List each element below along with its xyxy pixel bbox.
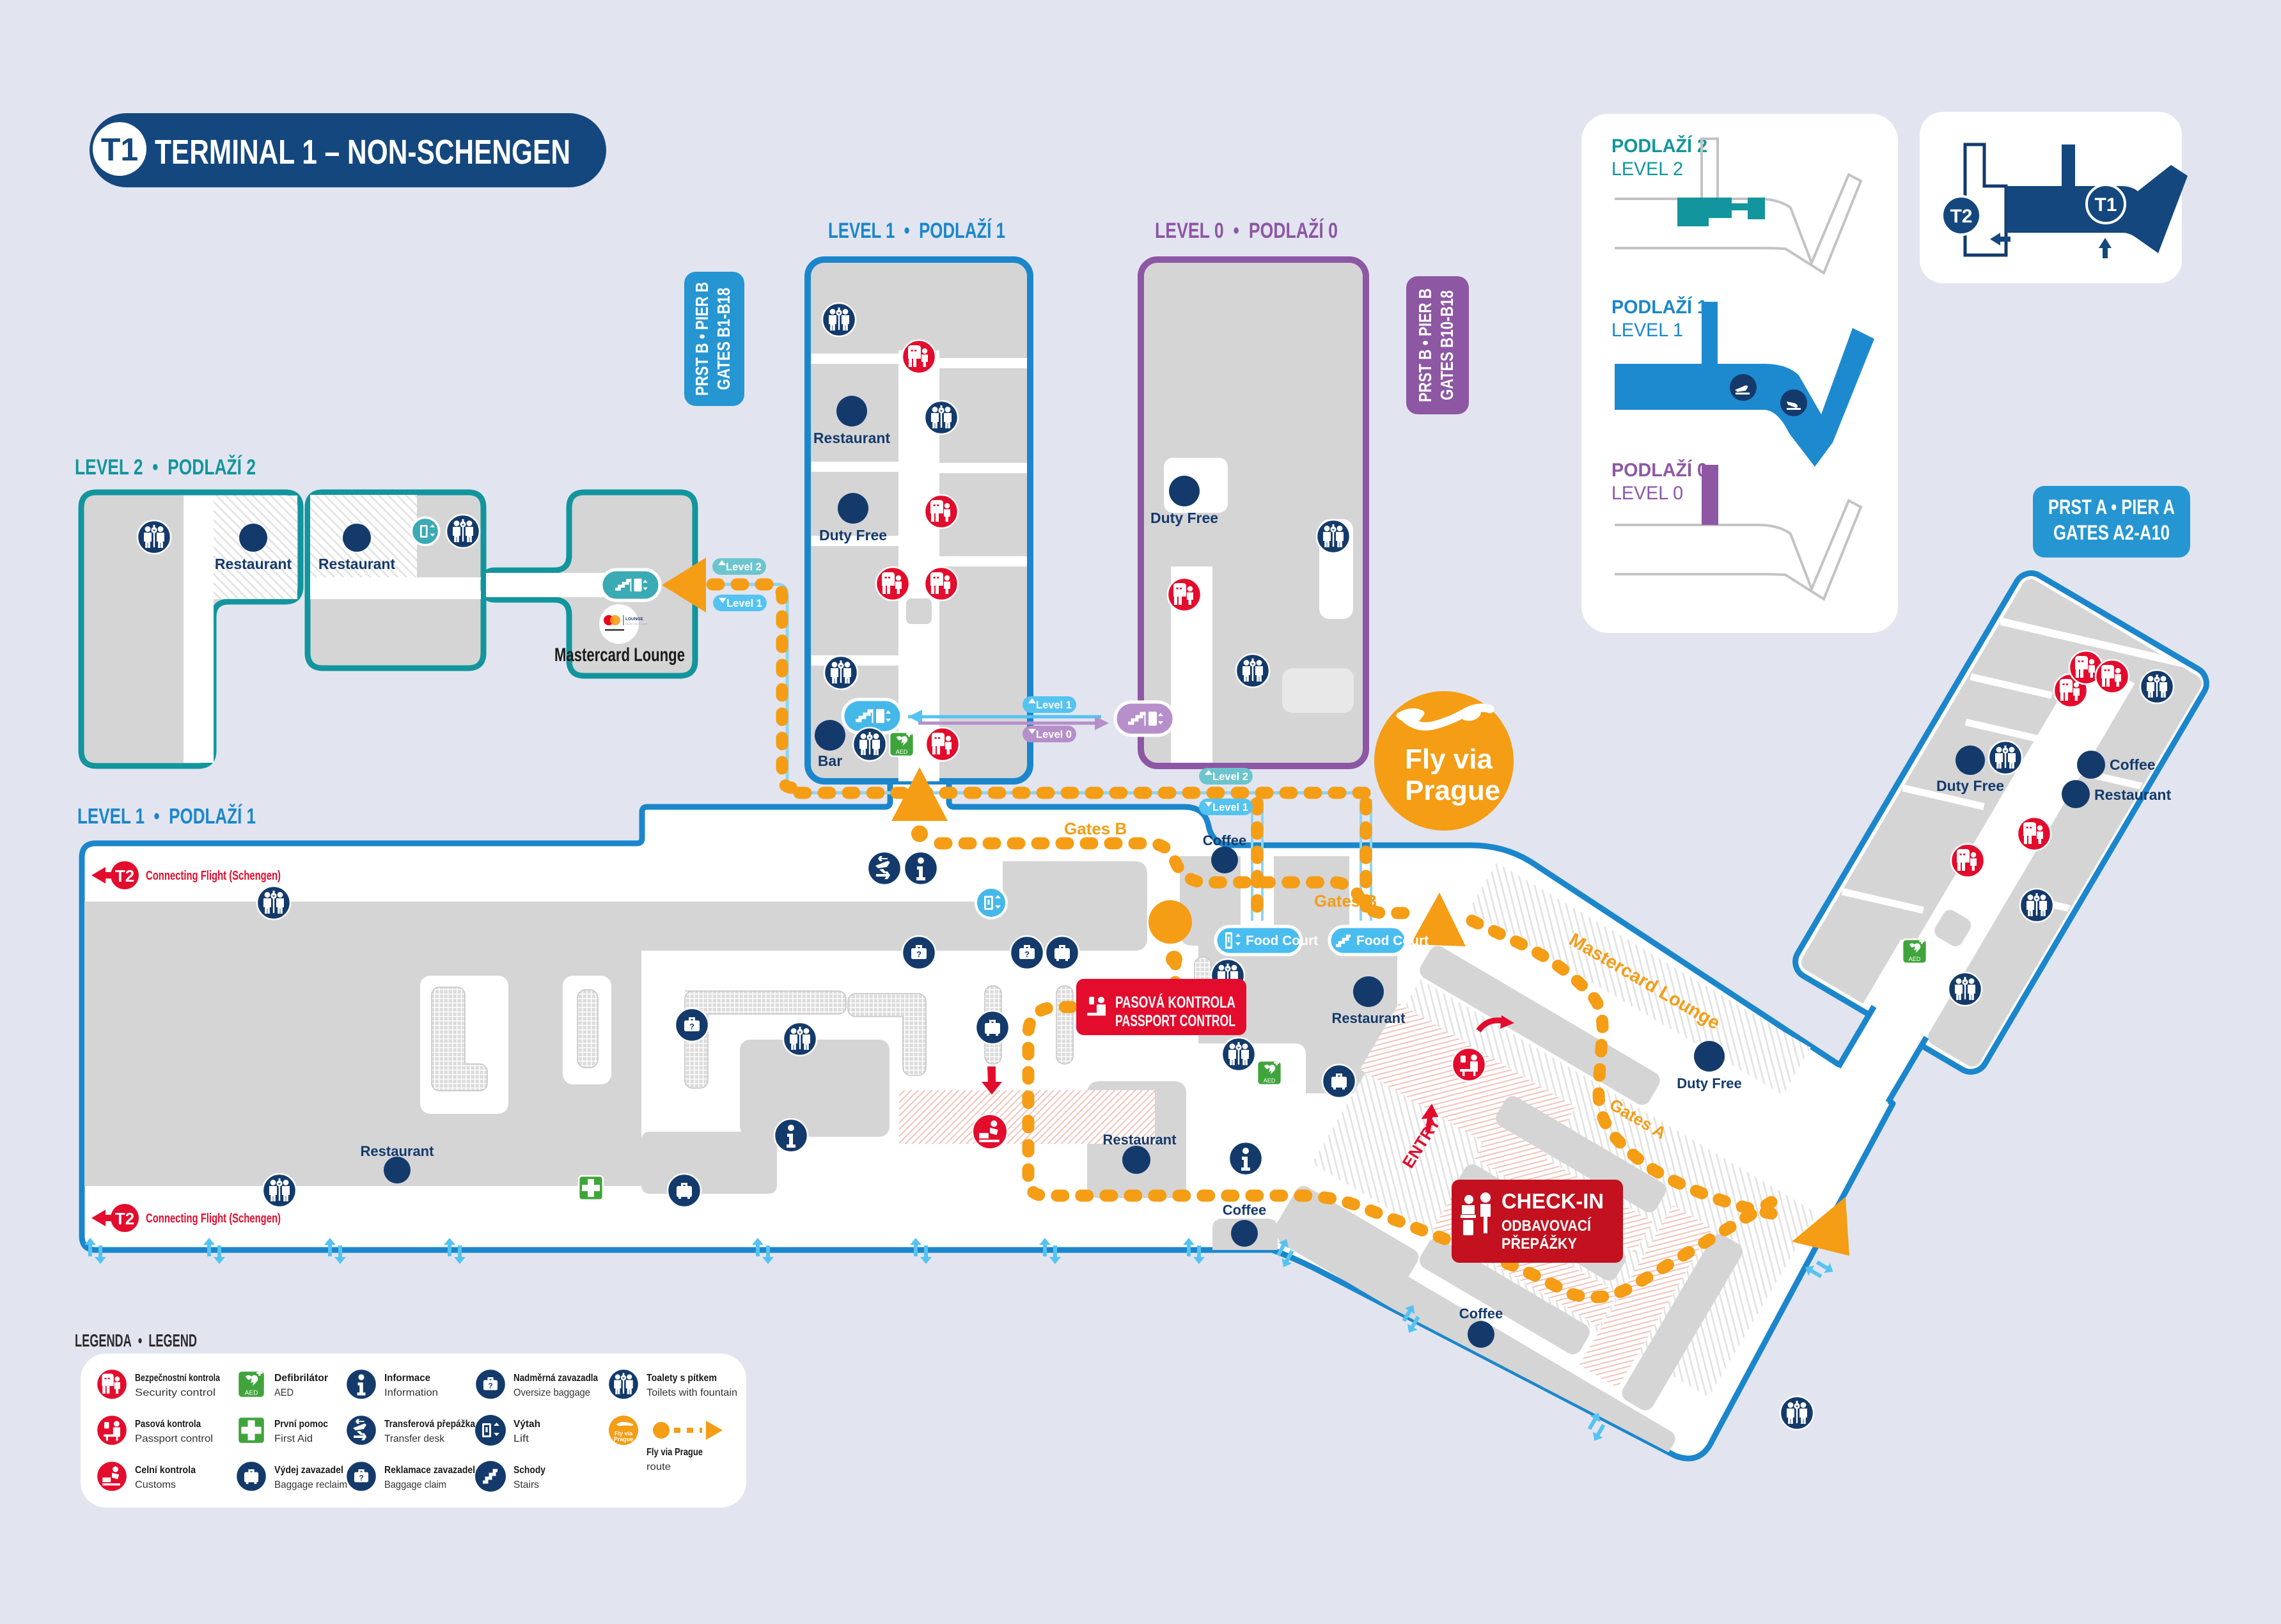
svg-text:První pomoc: První pomoc [274,1419,328,1430]
svg-text:Vaclav Havel Airport: Vaclav Havel Airport [625,622,649,625]
svg-text:PASSPORT CONTROL: PASSPORT CONTROL [1115,1012,1235,1030]
svg-text:TERMINAL 1 – NON-SCHENGEN: TERMINAL 1 – NON-SCHENGEN [155,133,570,171]
svg-text:Customs: Customs [135,1480,176,1490]
svg-text:LEVEL 2 • PODLAŽÍ 2: LEVEL 2 • PODLAŽÍ 2 [75,455,256,480]
svg-text:CHECK-IN: CHECK-IN [1501,1189,1604,1213]
svg-text:GATES B1-B18: GATES B1-B18 [714,288,733,390]
svg-text:Lift: Lift [513,1433,529,1444]
svg-text:Oversize baggage: Oversize baggage [513,1387,590,1398]
svg-text:Connecting Flight (Schengen): Connecting Flight (Schengen) [146,869,281,883]
svg-text:Bar: Bar [818,753,842,769]
svg-text:Gates B: Gates B [1064,819,1127,838]
svg-text:Transfer desk: Transfer desk [384,1433,445,1444]
svg-text:PODLAŽÍ 0: PODLAŽÍ 0 [1611,459,1707,481]
svg-text:LEVEL 0 • PODLAŽÍ 0: LEVEL 0 • PODLAŽÍ 0 [1155,219,1338,243]
svg-text:T2: T2 [115,866,134,886]
svg-text:Schody: Schody [513,1465,545,1476]
svg-text:Restaurant: Restaurant [318,556,395,572]
svg-text:Mastercard Lounge: Mastercard Lounge [554,644,685,666]
svg-text:Level 2: Level 2 [726,561,762,573]
svg-text:GATES A2-A10: GATES A2-A10 [2053,521,2170,544]
svg-text:Coffee: Coffee [2110,756,2156,773]
svg-text:Restaurant: Restaurant [2094,786,2171,803]
svg-text:Food Court: Food Court [1246,933,1318,948]
svg-text:Výdej zavazadel: Výdej zavazadel [274,1465,343,1476]
svg-text:LEVEL 1 • PODLAŽÍ 1: LEVEL 1 • PODLAŽÍ 1 [828,219,1005,243]
svg-text:Baggage reclaim: Baggage reclaim [274,1480,347,1490]
svg-text:Výtah: Výtah [513,1419,540,1430]
svg-text:Restaurant: Restaurant [1332,1010,1406,1026]
svg-text:LEVEL 1 • PODLAŽÍ 1: LEVEL 1 • PODLAŽÍ 1 [77,804,256,829]
svg-text:PRST B • PIER B: PRST B • PIER B [1415,288,1435,402]
svg-text:Celní kontrola: Celní kontrola [135,1465,196,1476]
svg-text:First Aid: First Aid [274,1433,313,1444]
svg-text:Information: Information [384,1387,438,1398]
svg-text:Informace: Informace [384,1373,430,1384]
svg-text:Baggage claim: Baggage claim [384,1480,446,1490]
svg-text:Prague: Prague [614,1436,634,1442]
svg-text:Coffee: Coffee [1203,832,1246,848]
svg-text:LEVEL 1: LEVEL 1 [1611,320,1683,341]
svg-text:GATES B10-B18: GATES B10-B18 [1437,290,1457,400]
svg-text:Level 1: Level 1 [726,598,762,609]
svg-text:Restaurant: Restaurant [361,1143,435,1159]
svg-text:T1: T1 [101,132,138,168]
svg-text:LEVEL 0: LEVEL 0 [1611,483,1683,504]
svg-text:Defibrilátor: Defibrilátor [274,1373,328,1384]
svg-text:Prague: Prague [1405,775,1500,806]
svg-text:AED: AED [274,1387,294,1398]
svg-text:ODBAVOVACÍ: ODBAVOVACÍ [1501,1217,1592,1235]
svg-text:T2: T2 [115,1209,134,1228]
svg-text:Passport control: Passport control [135,1433,213,1444]
svg-text:Duty Free: Duty Free [819,527,887,543]
svg-text:Toilets with fountain: Toilets with fountain [647,1387,737,1398]
svg-text:Gates B: Gates B [1314,891,1377,910]
svg-text:Coffee: Coffee [1223,1202,1266,1218]
svg-text:Food Court: Food Court [1356,933,1429,948]
svg-text:Level 2: Level 2 [1212,771,1248,783]
svg-text:Level 1: Level 1 [1212,802,1248,813]
svg-text:Fly via Prague: Fly via Prague [647,1447,703,1458]
svg-text:route: route [647,1462,671,1472]
svg-text:Stairs: Stairs [513,1480,539,1490]
svg-text:Restaurant: Restaurant [215,556,292,572]
svg-text:PRST A • PIER A: PRST A • PIER A [2048,496,2175,519]
svg-text:Bezpečnostní kontrola: Bezpečnostní kontrola [135,1373,220,1384]
svg-text:Duty Free: Duty Free [1936,777,2004,794]
svg-text:LOUNGE: LOUNGE [625,617,643,621]
svg-text:Duty Free: Duty Free [1150,510,1218,526]
svg-text:PODLAŽÍ 2: PODLAŽÍ 2 [1611,135,1707,157]
svg-text:Toalety s pítkem: Toalety s pítkem [647,1373,717,1384]
svg-text:T2: T2 [1950,206,1972,227]
svg-text:Fly via: Fly via [1405,744,1493,775]
svg-text:Restaurant: Restaurant [1103,1132,1177,1148]
svg-text:T1: T1 [2094,194,2117,215]
svg-text:Pasová kontrola: Pasová kontrola [135,1419,201,1430]
svg-text:Connecting Flight (Schengen): Connecting Flight (Schengen) [146,1212,281,1226]
svg-text:Restaurant: Restaurant [813,430,890,446]
svg-text:PRST B • PIER B: PRST B • PIER B [692,282,712,396]
svg-text:Reklamace zavazadel: Reklamace zavazadel [384,1465,475,1476]
svg-text:Coffee: Coffee [1459,1306,1503,1322]
svg-text:Transferová přepážka: Transferová přepážka [384,1419,475,1430]
svg-text:Nadměrná zavazadla: Nadměrná zavazadla [513,1373,598,1384]
svg-text:LEGENDA • LEGEND: LEGENDA • LEGEND [75,1331,197,1350]
svg-text:Security control: Security control [135,1387,216,1398]
svg-text:LEVEL 2: LEVEL 2 [1611,159,1683,180]
svg-text:Level 0: Level 0 [1036,729,1072,740]
svg-text:Level 1: Level 1 [1036,699,1072,711]
svg-text:Duty Free: Duty Free [1677,1075,1741,1091]
svg-text:PŘEPÁŽKY: PŘEPÁŽKY [1501,1235,1577,1253]
svg-text:PASOVÁ KONTROLA: PASOVÁ KONTROLA [1115,993,1235,1011]
svg-text:PODLAŽÍ 1: PODLAŽÍ 1 [1611,296,1707,318]
